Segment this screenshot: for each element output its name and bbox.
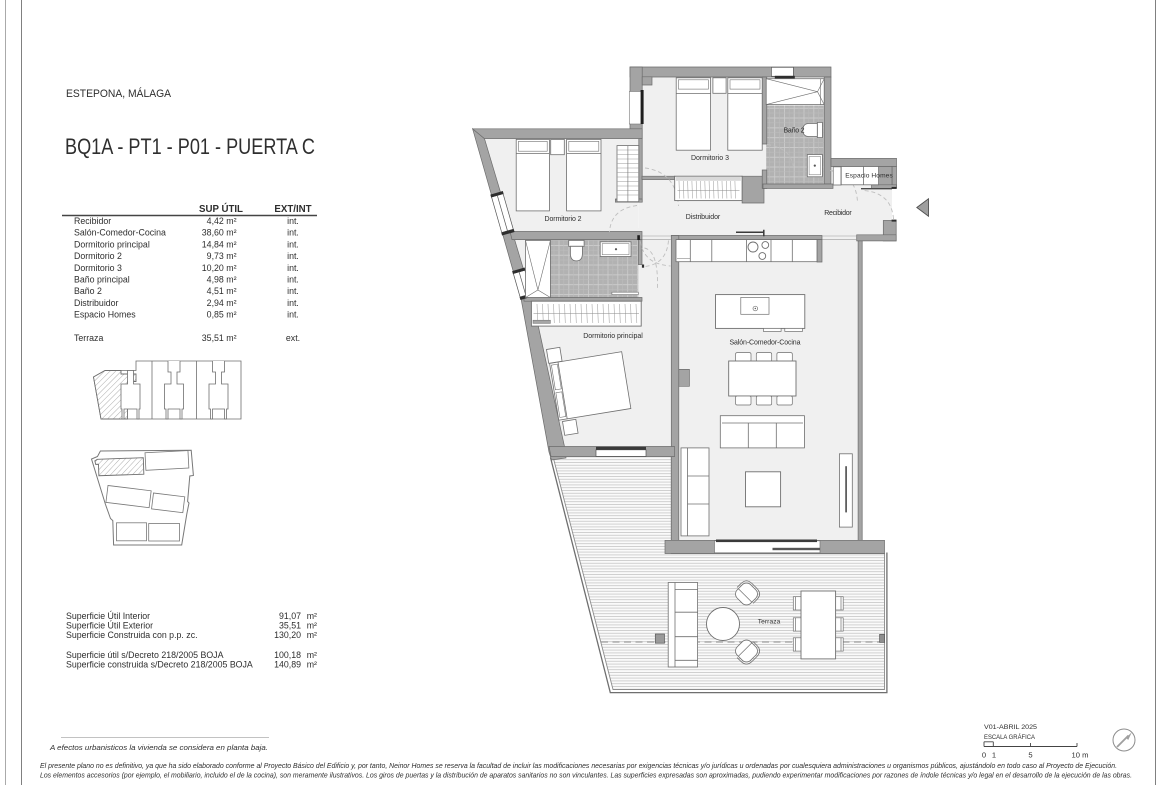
svg-text:0,85 m²: 0,85 m² — [207, 310, 237, 320]
svg-text:Dormitorio principal: Dormitorio principal — [74, 239, 150, 249]
svg-text:38,60 m²: 38,60 m² — [202, 228, 237, 238]
svg-text:Terraza: Terraza — [74, 333, 103, 343]
svg-text:100,18: 100,18 — [274, 650, 301, 660]
svg-text:Superficie útil s/Decreto 218/: Superficie útil s/Decreto 218/2005 BOJA — [66, 650, 224, 660]
svg-text:m²: m² — [307, 611, 317, 621]
svg-text:Superficie Construida con p.p.: Superficie Construida con p.p. zc. — [66, 630, 198, 640]
svg-text:ESTEPONA, MÁLAGA: ESTEPONA, MÁLAGA — [66, 87, 171, 100]
svg-text:2,94 m²: 2,94 m² — [207, 298, 237, 308]
svg-text:9,73 m²: 9,73 m² — [207, 251, 237, 261]
svg-text:m²: m² — [307, 650, 317, 660]
svg-text:int.: int. — [287, 275, 299, 285]
svg-text:35,51 m²: 35,51 m² — [202, 333, 237, 343]
svg-text:m²: m² — [307, 621, 317, 631]
svg-text:Superficie Útil Exterior: Superficie Útil Exterior — [66, 621, 153, 631]
svg-text:Los elementos accesorios (por: Los elementos accesorios (por ejemplo, e… — [40, 773, 1132, 780]
svg-text:1: 1 — [992, 751, 996, 760]
svg-text:14,84 m²: 14,84 m² — [202, 239, 237, 249]
svg-text:Recibidor: Recibidor — [74, 216, 111, 226]
svg-text:Dormitorio 2: Dormitorio 2 — [74, 251, 122, 261]
svg-text:int.: int. — [287, 310, 299, 320]
svg-text:0: 0 — [982, 751, 986, 760]
svg-text:int.: int. — [287, 251, 299, 261]
svg-text:Baño 2: Baño 2 — [74, 286, 102, 296]
svg-text:Distribuidor: Distribuidor — [686, 214, 721, 221]
svg-text:int.: int. — [287, 228, 299, 238]
svg-text:SUP ÚTIL: SUP ÚTIL — [199, 203, 243, 215]
svg-text:BQ1A - PT1 - P01 - PUERTA C: BQ1A - PT1 - P01 - PUERTA C — [65, 134, 315, 159]
svg-text:m²: m² — [307, 630, 317, 640]
svg-text:Terraza: Terraza — [758, 619, 781, 626]
svg-text:Salón-Comedor-Cocina: Salón-Comedor-Cocina — [730, 340, 801, 347]
svg-text:EXT/INT: EXT/INT — [274, 204, 311, 215]
svg-text:Distribuidor: Distribuidor — [74, 298, 119, 308]
svg-text:Dormitorio 2: Dormitorio 2 — [545, 216, 582, 223]
svg-text:El presente plano no es defini: El presente plano no es definitivo, ya q… — [40, 763, 1117, 770]
svg-text:10 m: 10 m — [1072, 751, 1089, 760]
svg-text:Dormitorio 3: Dormitorio 3 — [74, 263, 122, 273]
svg-text:Espacio Homes: Espacio Homes — [845, 173, 893, 180]
svg-text:Salón-Comedor-Cocina: Salón-Comedor-Cocina — [74, 228, 166, 238]
svg-text:int.: int. — [287, 239, 299, 249]
svg-text:ext.: ext. — [286, 333, 300, 343]
svg-text:140,89: 140,89 — [274, 660, 301, 670]
svg-text:35,51: 35,51 — [279, 621, 301, 631]
svg-text:Superficie Útil Interior: Superficie Útil Interior — [66, 611, 150, 621]
svg-text:int.: int. — [287, 298, 299, 308]
svg-text:4,42 m²: 4,42 m² — [207, 216, 237, 226]
svg-text:ESCALA GRÁFICA: ESCALA GRÁFICA — [984, 732, 1036, 741]
svg-text:Superficie construida s/Decret: Superficie construida s/Decreto 218/2005… — [66, 660, 253, 670]
svg-text:5: 5 — [1028, 751, 1032, 760]
svg-text:91,07: 91,07 — [279, 611, 301, 621]
svg-text:Dormitorio 3: Dormitorio 3 — [691, 155, 729, 162]
svg-text:Recibidor: Recibidor — [824, 210, 852, 217]
svg-text:10,20 m²: 10,20 m² — [202, 263, 237, 273]
svg-text:m²: m² — [307, 660, 317, 670]
svg-text:int.: int. — [287, 286, 299, 296]
svg-text:A efectos urbanisticos la vivi: A efectos urbanisticos la vivienda se co… — [49, 745, 268, 752]
svg-text:Baño 2: Baño 2 — [784, 128, 805, 135]
svg-text:V01-ABRIL 2025: V01-ABRIL 2025 — [984, 724, 1037, 731]
svg-text:Baño principal: Baño principal — [74, 275, 130, 285]
svg-text:int.: int. — [287, 216, 299, 226]
svg-text:Dormitorio principal: Dormitorio principal — [583, 333, 643, 340]
svg-text:130,20: 130,20 — [274, 630, 301, 640]
svg-text:int.: int. — [287, 263, 299, 273]
svg-text:4,98 m²: 4,98 m² — [207, 275, 237, 285]
svg-text:4,51 m²: 4,51 m² — [207, 286, 237, 296]
svg-text:Espacio Homes: Espacio Homes — [74, 310, 136, 320]
